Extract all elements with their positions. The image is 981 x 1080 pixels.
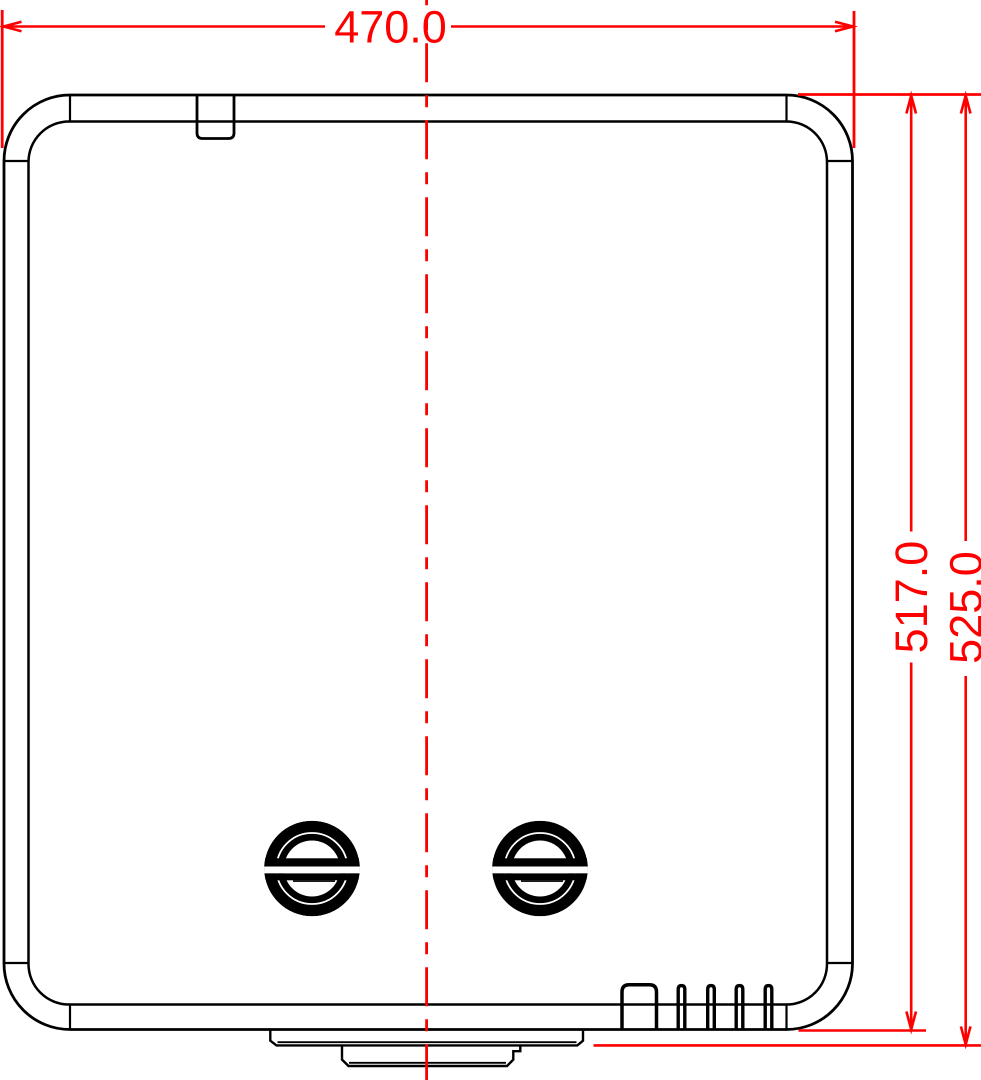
svg-text:517.0: 517.0 xyxy=(886,541,937,654)
svg-text:470.0: 470.0 xyxy=(334,2,447,53)
svg-text:525.0: 525.0 xyxy=(941,551,981,664)
